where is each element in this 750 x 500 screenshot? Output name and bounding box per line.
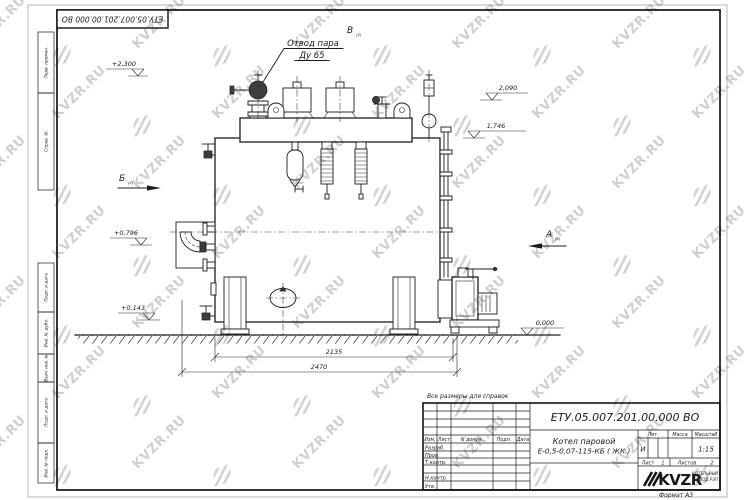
blower-duct: [438, 280, 453, 318]
view-a-label: А: [545, 230, 552, 240]
tb-row-utv: Утв.: [425, 484, 436, 490]
tb-col-ndoc: N докум.: [461, 437, 483, 443]
scanned-drawing-page: { "watermark": { "text": "KVZR.RU" }, "f…: [0, 0, 750, 500]
tb-doc-number: ЕТУ.05.007.201.00.000 ВО: [551, 411, 700, 424]
view-a-ref: (2): [555, 236, 561, 241]
tb-lit-value: И: [640, 446, 646, 454]
tb-sheets-value: 2: [710, 461, 713, 467]
view-b-ref: (2): [128, 180, 134, 185]
margin-label-inv-podl: Инв. № подл.: [44, 449, 49, 478]
tb-row-tkontr: Т.контр.: [425, 460, 447, 466]
tb-lit-label: Лит.: [646, 432, 658, 438]
elevation-plus-0143-text: +0,143: [121, 304, 145, 312]
tb-col-list: Лист: [437, 437, 450, 443]
margin-label-inv-dubl: Инв. № дубл.: [44, 319, 49, 348]
tb-col-izm: Изм.: [424, 437, 435, 443]
view-v-label: В: [347, 26, 353, 36]
tb-col-podp: Подп.: [497, 437, 512, 443]
view-v-ref: (2): [356, 32, 362, 37]
ground-line: [75, 335, 560, 344]
tb-row-razrab: Разраб.: [425, 446, 445, 452]
tb-product-code: Е-0,5-0,07-115-КБ ( ЖК ): [538, 447, 631, 456]
lifting-lug-right: [394, 103, 410, 118]
top-doc-box: ЕТУ.05.007.201.00.000 ВО: [57, 10, 168, 28]
margin-label-podp-data-1: Подп. и дата: [44, 273, 49, 302]
elevation-plus-2300-text: +2,300: [112, 60, 136, 68]
tb-row-nkontr: Н.контр.: [425, 476, 447, 482]
tb-col-data: Дата: [516, 437, 529, 443]
left-shell-plate: [211, 283, 216, 295]
tb-sheet-label: Лист: [641, 461, 656, 467]
elevation-plus-0796-text: +0,796: [114, 229, 138, 237]
blower-motor: [478, 293, 497, 314]
view-b-label: Б: [119, 174, 125, 184]
tb-row-prov: Пров.: [425, 453, 440, 459]
elevation-0000-text: 0,000: [536, 319, 555, 327]
reference-note: Все размеры для справок: [427, 393, 509, 400]
support-leg-left: [221, 277, 249, 334]
margin-label-perv-primen: Перв. примен.: [44, 47, 49, 78]
dimension-2470-text: 2470: [311, 363, 328, 371]
kvzr-logo-caption-2: ЗАВОД РЭП: [694, 477, 718, 482]
steam-drum: [240, 118, 412, 142]
callout-line1: Отвод пара: [287, 39, 339, 49]
margin-label-sprav-no: Справ. №: [44, 131, 49, 152]
kvzr-logo-caption-1: КОТЕЛЬНЫЙ: [692, 471, 718, 476]
margin-label-vzam-inv: Взам. инв. №: [44, 354, 49, 381]
elevation-2090-text: 2,090: [499, 84, 518, 92]
tb-scale-label: Масштаб: [695, 432, 718, 438]
elevation-1746-text: 1,746: [487, 122, 506, 130]
tb-sheet-value: 1: [661, 461, 664, 467]
tb-mass-label: Масса: [672, 432, 687, 438]
top-doc-number: ЕТУ.05.007.201.00.000 ВО: [62, 15, 163, 24]
dimension-2135-text: 2135: [326, 348, 343, 356]
format-note: Формат А3: [659, 492, 693, 499]
drawing-sheet-svg: Перв. примен. Справ. № Подп. и дата Инв.…: [0, 0, 750, 500]
lifting-lug-left: [268, 103, 284, 118]
callout-line2: Ду 65: [298, 51, 324, 61]
tb-product-name: Котел паровой: [553, 437, 616, 446]
tb-sheets-label: Листов: [677, 461, 697, 467]
support-leg-right: [390, 277, 418, 334]
margin-label-podp-data-2: Подп. и дата: [44, 398, 49, 427]
blower-base: [450, 320, 499, 327]
tb-scale-value: 1:15: [698, 446, 714, 454]
